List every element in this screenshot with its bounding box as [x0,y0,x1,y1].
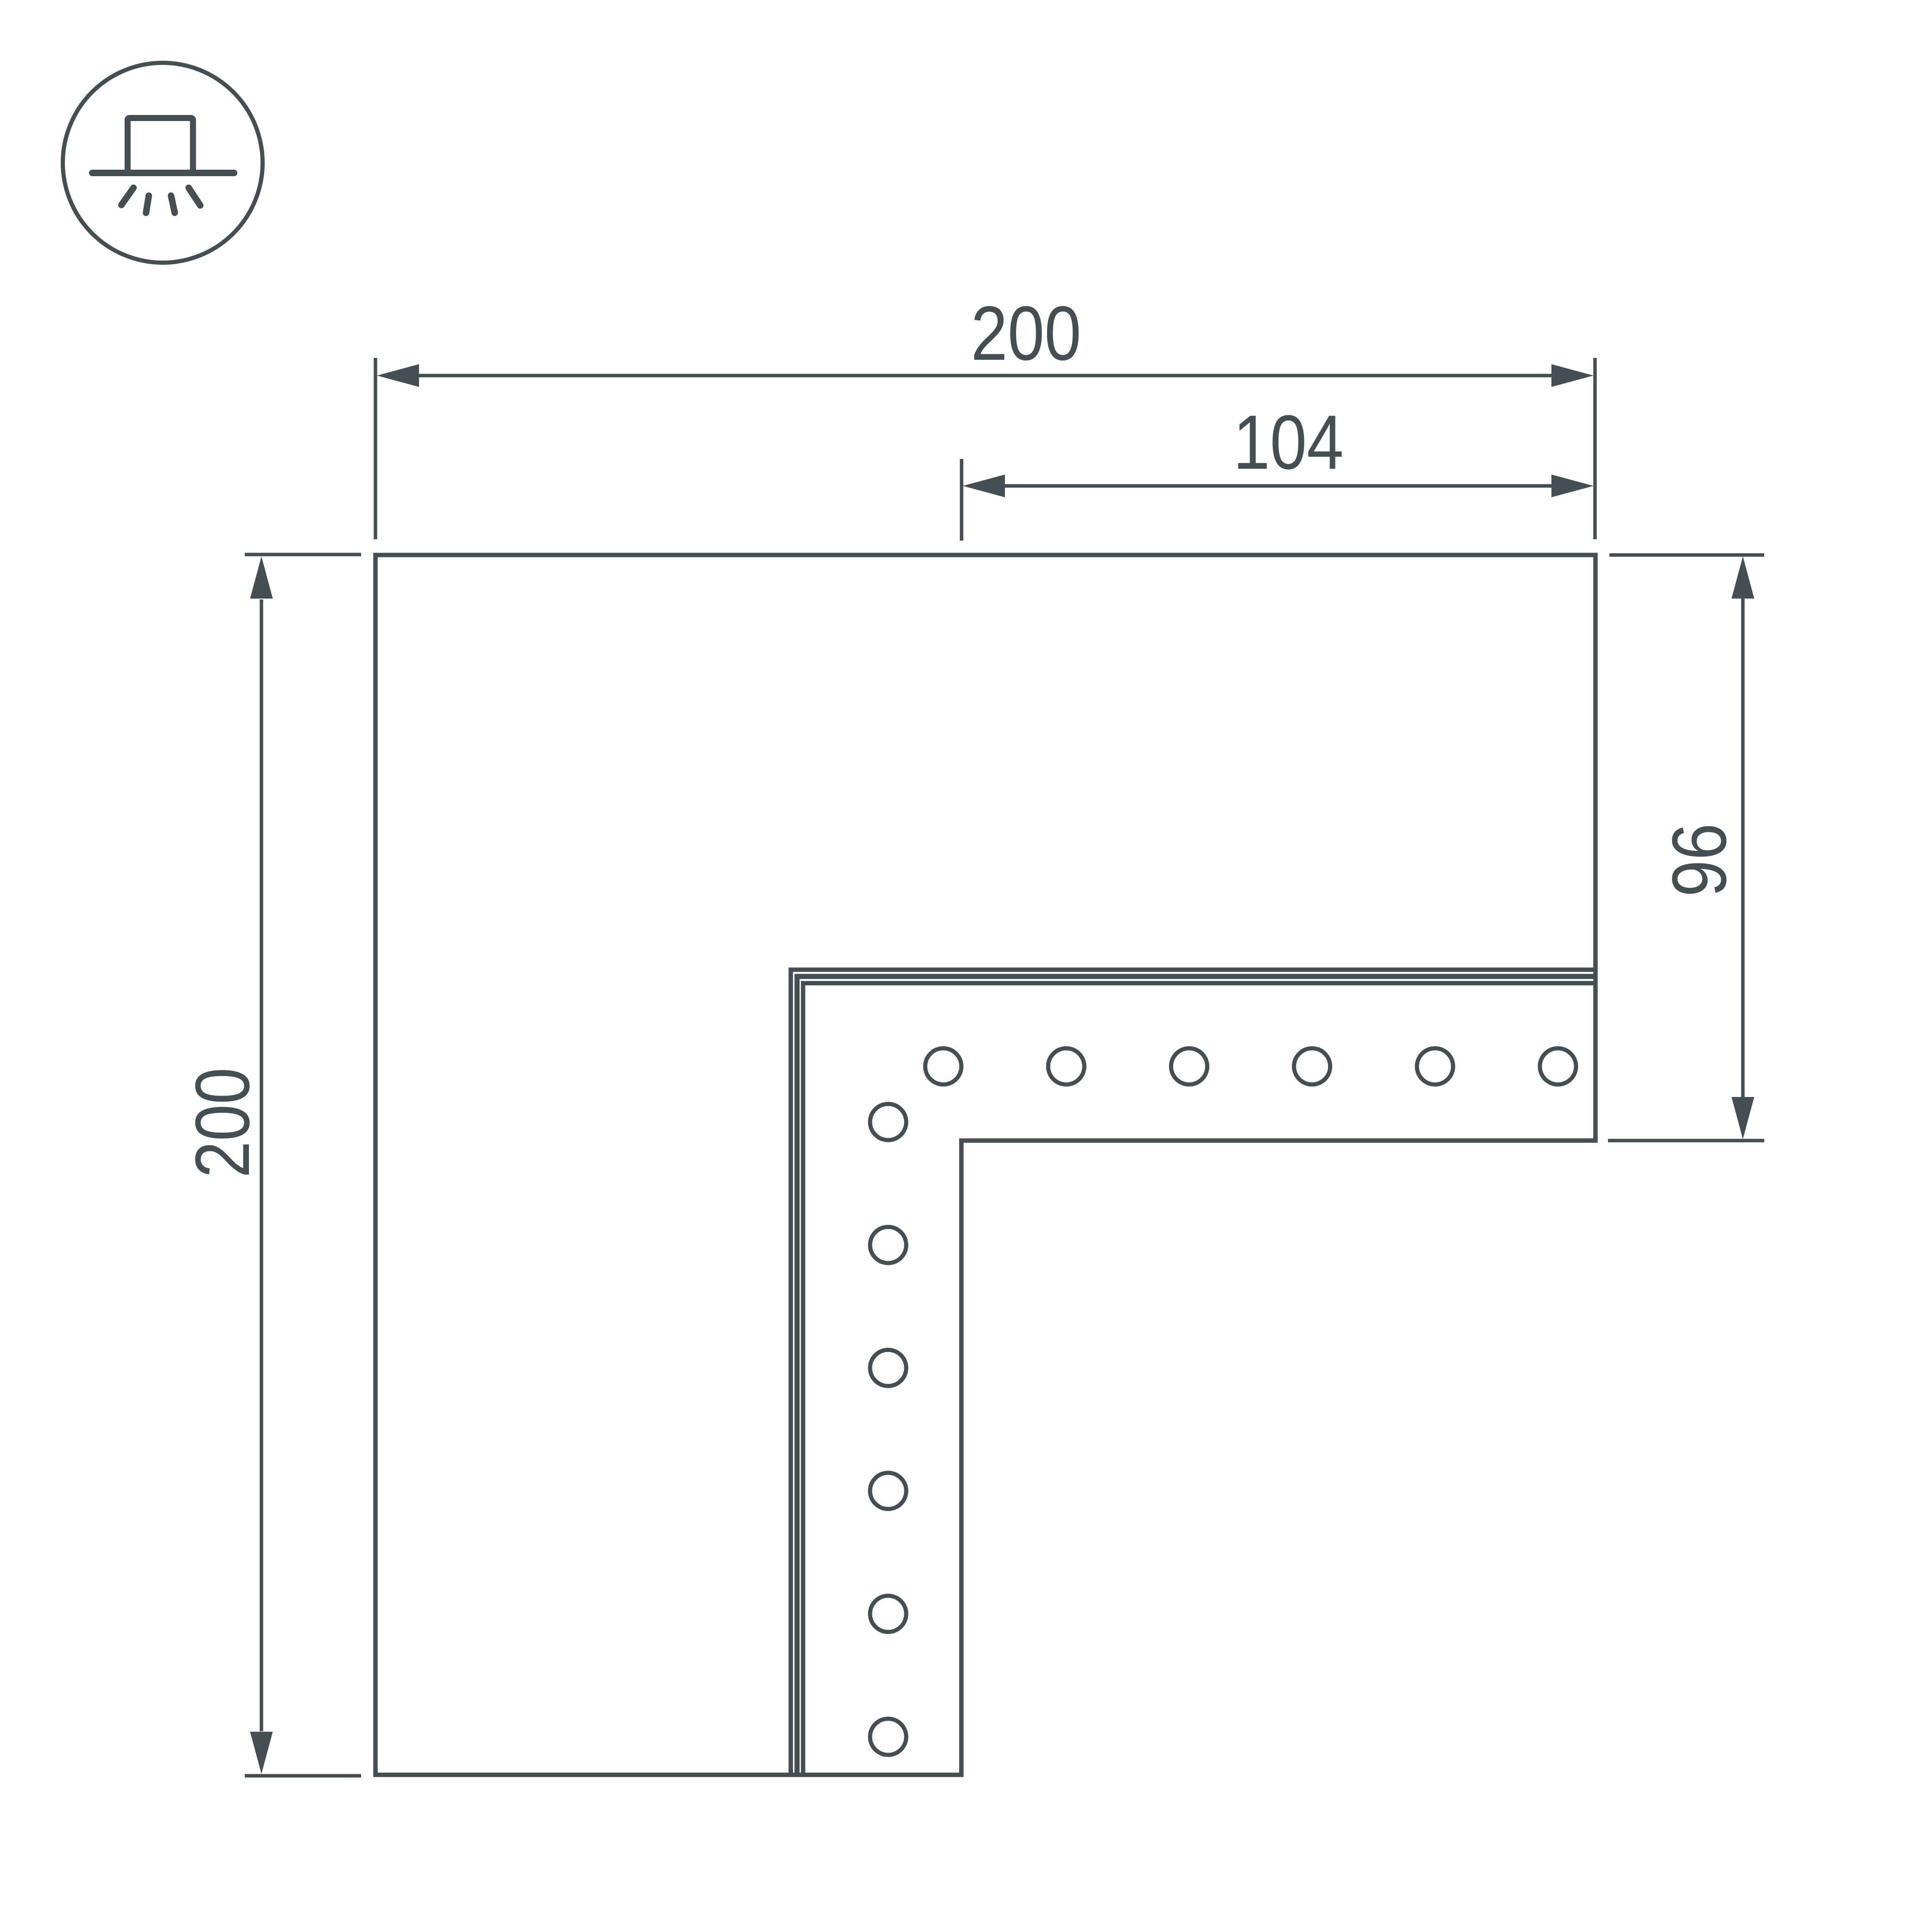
svg-text:96: 96 [1656,823,1742,897]
svg-text:104: 104 [1233,399,1343,485]
svg-text:200: 200 [971,290,1081,376]
svg-text:200: 200 [179,1067,265,1178]
